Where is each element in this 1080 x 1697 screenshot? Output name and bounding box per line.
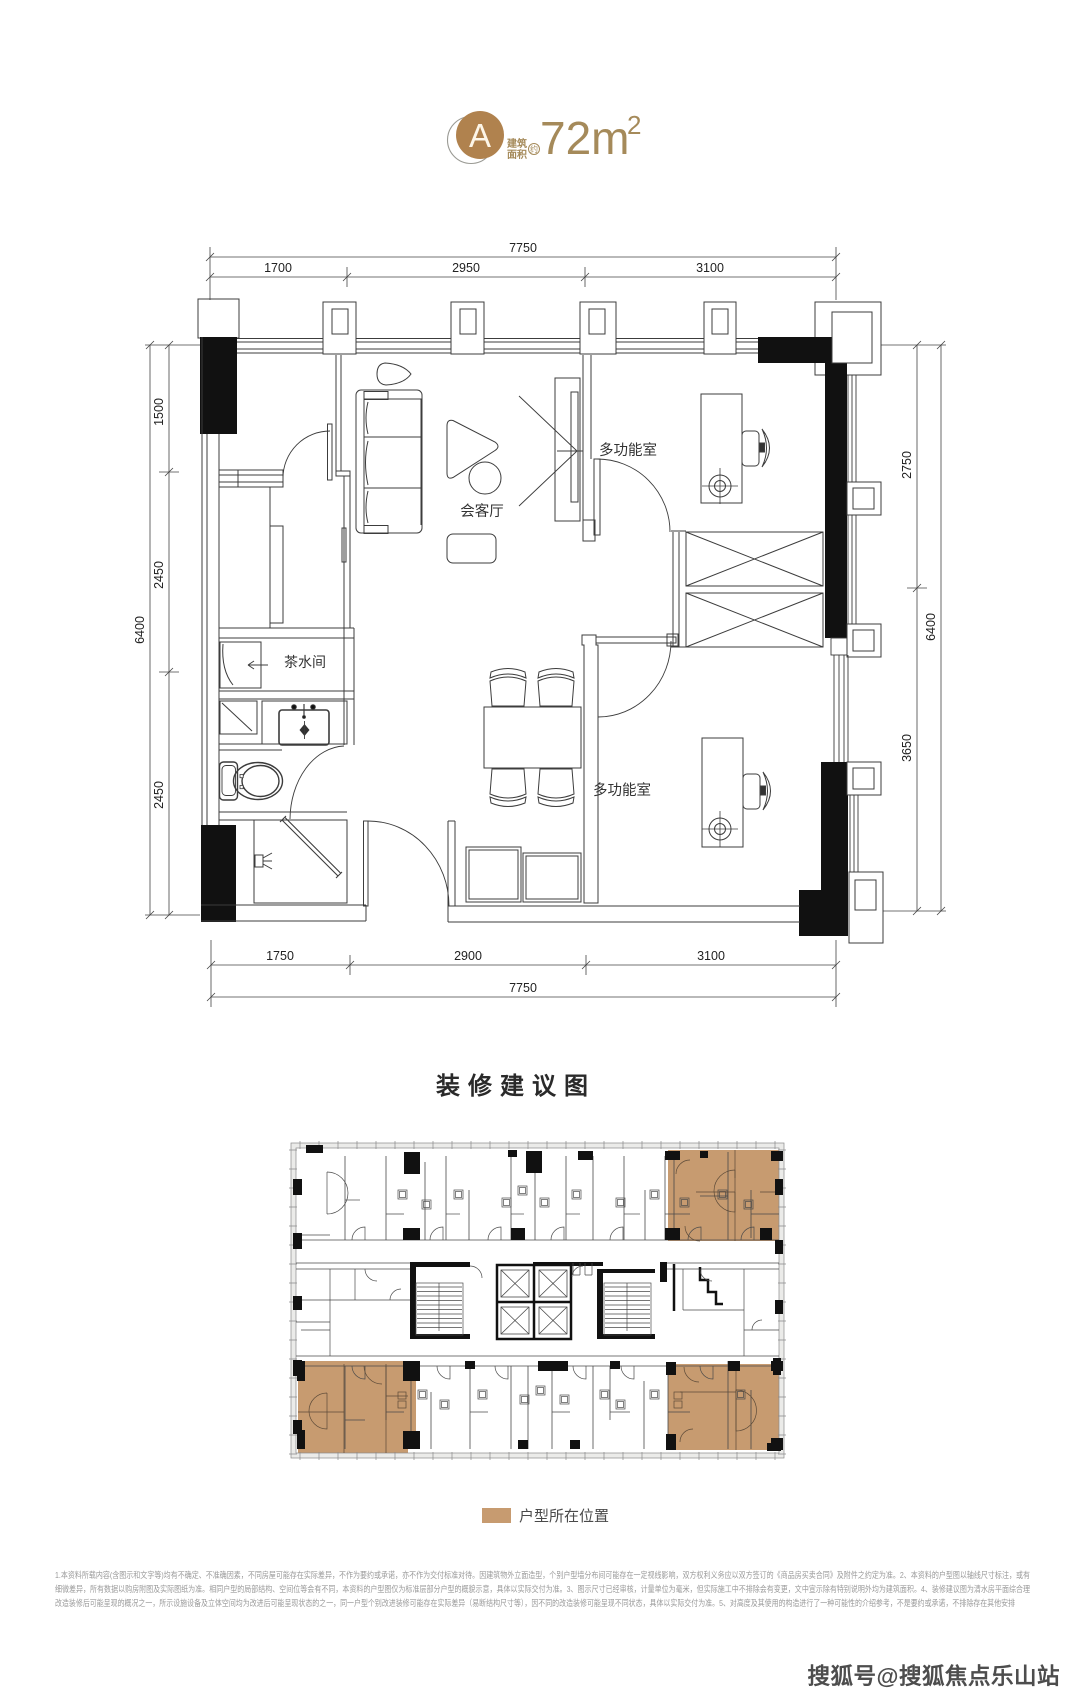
svg-text:2750: 2750 — [900, 451, 914, 479]
svg-text:装修建议图: 装修建议图 — [436, 1073, 596, 1100]
svg-text:1700: 1700 — [264, 261, 292, 275]
svg-text:2900: 2900 — [454, 949, 482, 963]
svg-text:改造装修后可能呈现的概况之一，所示设施设备及立体空间均为改进: 改造装修后可能呈现的概况之一，所示设施设备及立体空间均为改进后可能呈现状态的之一… — [55, 1598, 1015, 1608]
svg-text:1500: 1500 — [152, 398, 166, 426]
svg-text:户型所在位置: 户型所在位置 — [519, 1508, 609, 1525]
svg-text:搜狐号@搜狐焦点乐山站: 搜狐号@搜狐焦点乐山站 — [808, 1663, 1060, 1689]
svg-text:3650: 3650 — [900, 734, 914, 762]
svg-text:2450: 2450 — [152, 781, 166, 809]
svg-text:会客厅: 会客厅 — [460, 503, 504, 520]
svg-text:7750: 7750 — [509, 241, 537, 255]
svg-text:2950: 2950 — [452, 261, 480, 275]
svg-text:多功能室: 多功能室 — [599, 442, 657, 459]
svg-text:2450: 2450 — [152, 561, 166, 589]
svg-text:1.本资料所载内容(含图示和文字等)均有不确定、不准确因素，: 1.本资料所载内容(含图示和文字等)均有不确定、不准确因素，不同房屋可能存在实际… — [55, 1570, 1030, 1580]
svg-text:6400: 6400 — [924, 613, 938, 641]
svg-text:面积: 面积 — [507, 148, 527, 161]
svg-text:3100: 3100 — [697, 949, 725, 963]
svg-text:多功能室: 多功能室 — [593, 782, 651, 799]
svg-text:建筑: 建筑 — [506, 137, 527, 150]
svg-text:3100: 3100 — [696, 261, 724, 275]
svg-text:细微差异，所有数据以购房附图及实际图纸为准。相同户型的局部结: 细微差异，所有数据以购房附图及实际图纸为准。相同户型的局部结构、空间位等会有不同… — [55, 1584, 1030, 1594]
svg-text:72m: 72m — [540, 112, 629, 164]
svg-text:约: 约 — [530, 144, 538, 154]
svg-text:A: A — [469, 117, 491, 154]
svg-text:6400: 6400 — [133, 616, 147, 644]
svg-text:2: 2 — [627, 110, 641, 140]
svg-text:1750: 1750 — [266, 949, 294, 963]
svg-text:7750: 7750 — [509, 981, 537, 995]
svg-text:茶水间: 茶水间 — [284, 654, 326, 670]
